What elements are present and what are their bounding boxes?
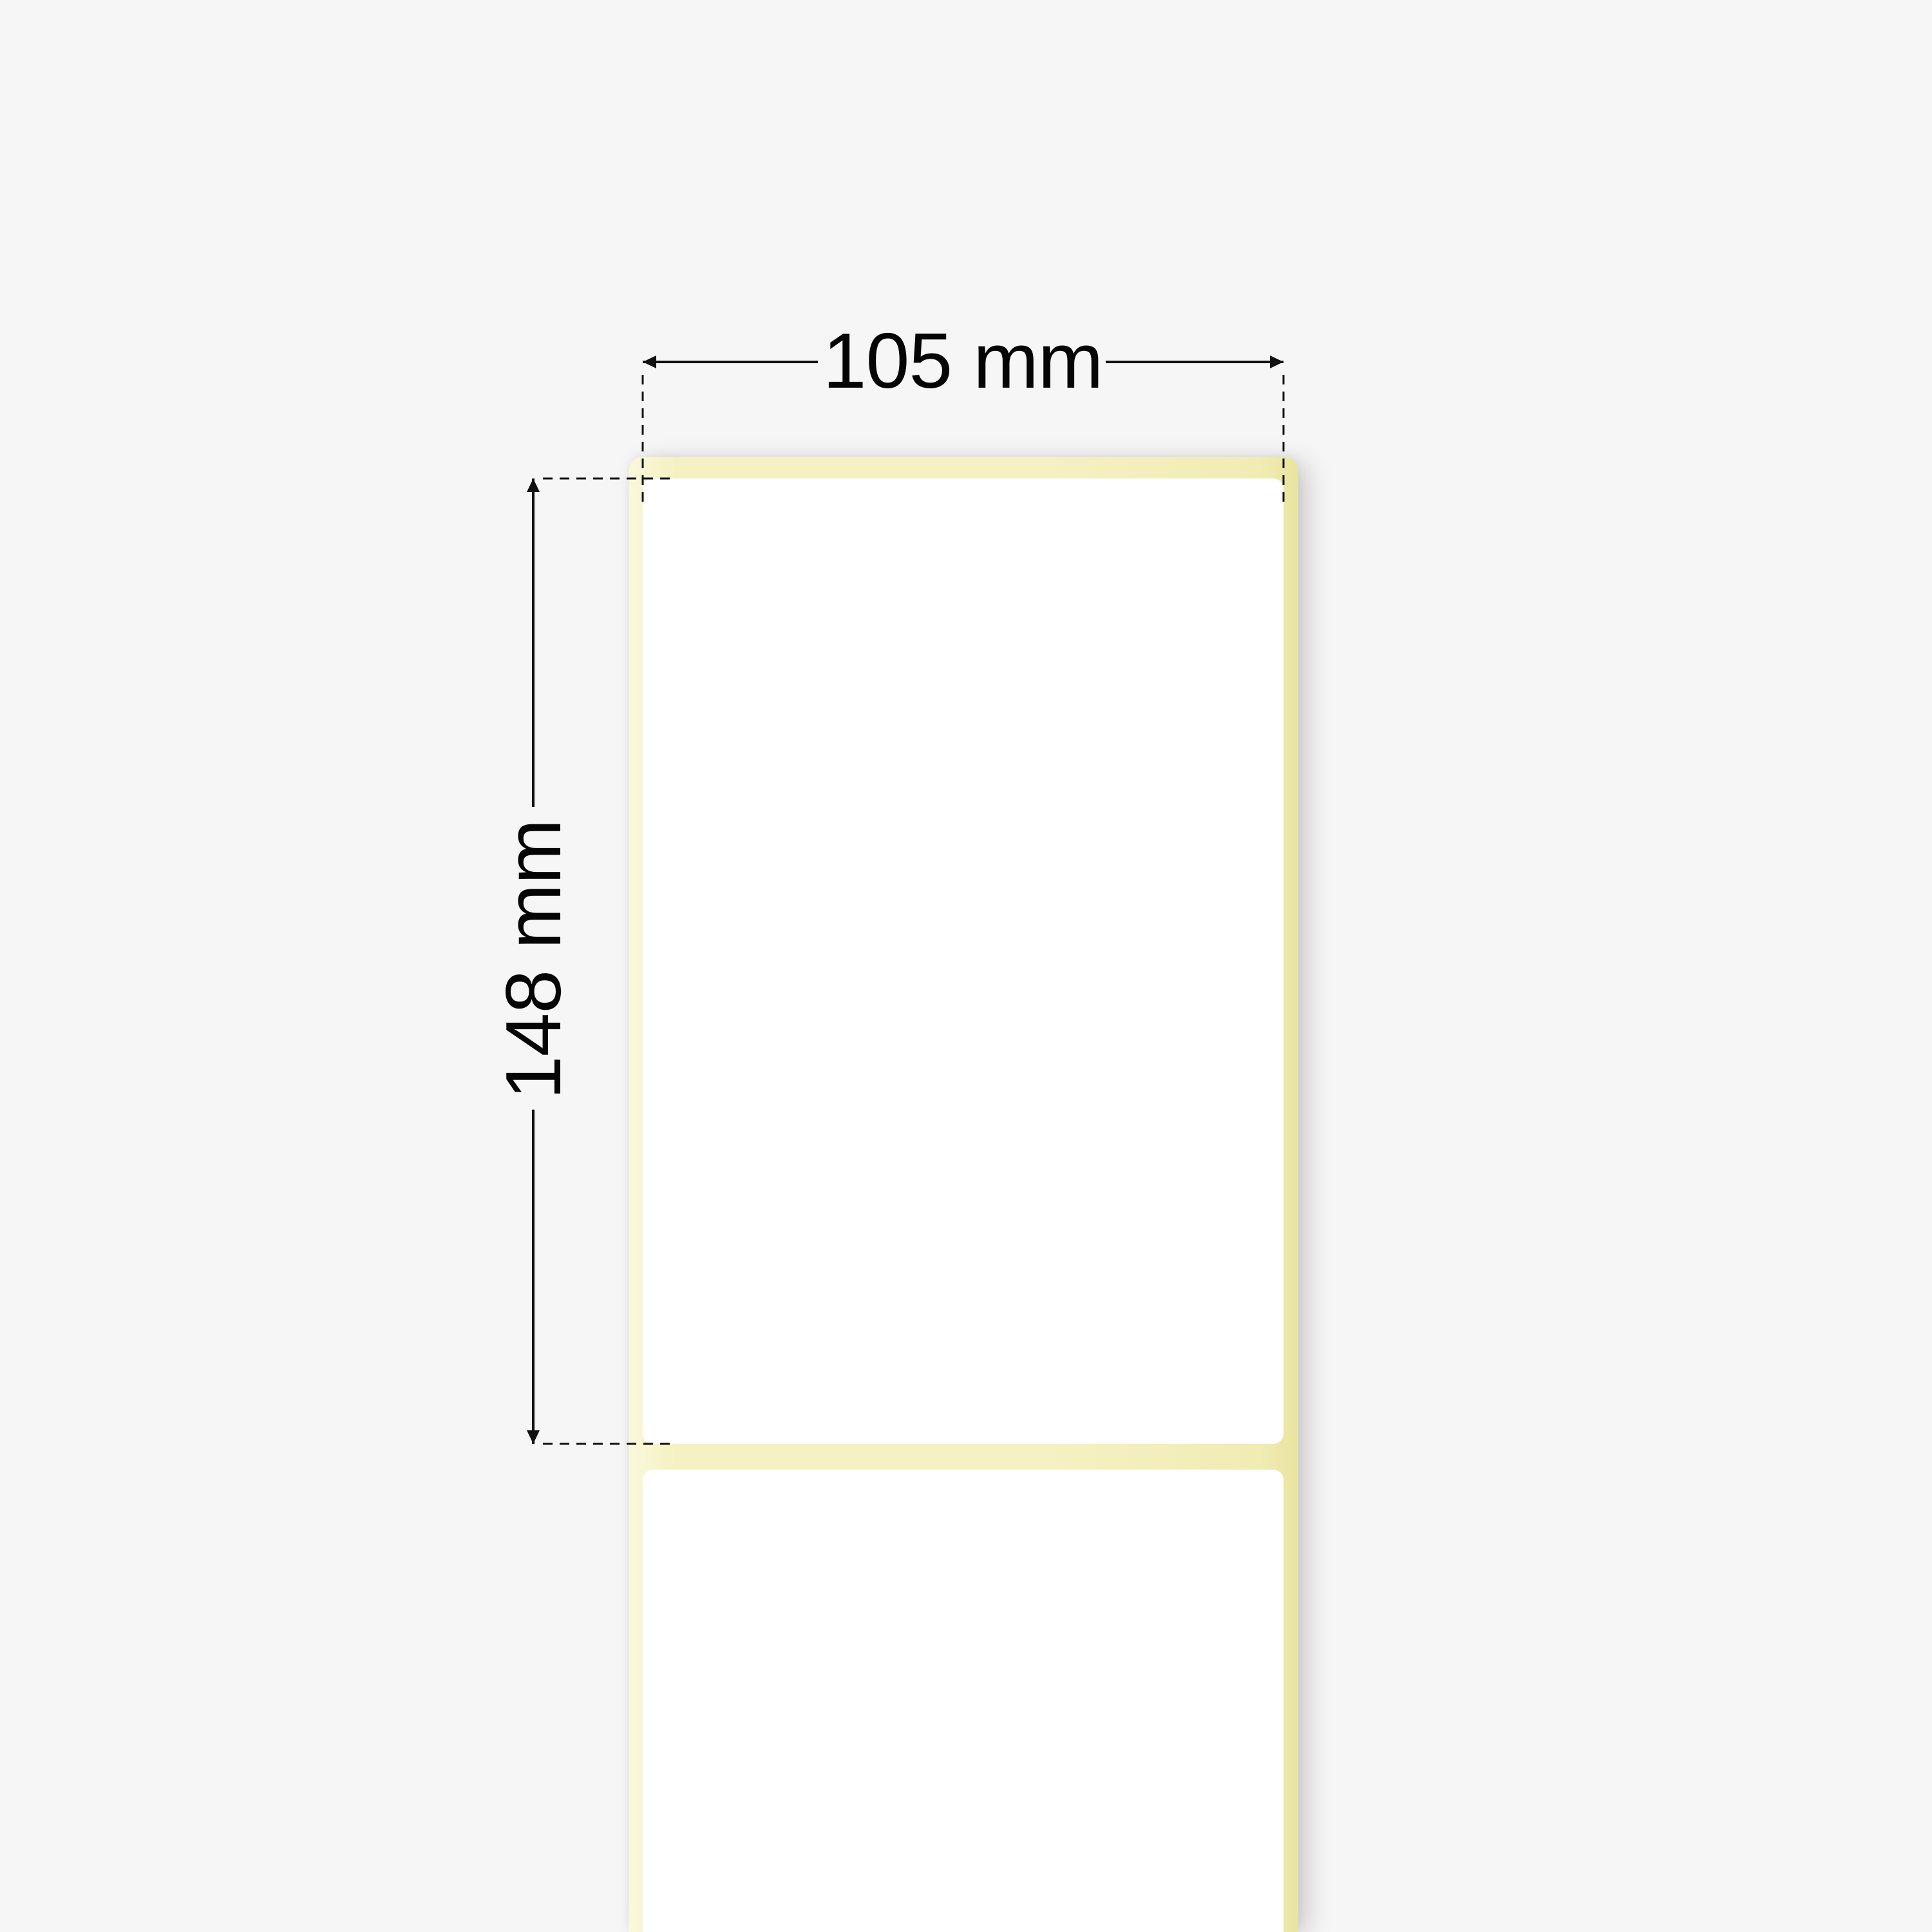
width-dimension-label: 105 mm bbox=[823, 321, 1103, 400]
arrow-right-icon bbox=[1270, 355, 1283, 368]
arrow-down-icon bbox=[527, 1430, 540, 1444]
height-dimension-label: 148 mm bbox=[494, 820, 573, 1100]
label-dimension-diagram: 105 mm 148 mm bbox=[0, 0, 1932, 1932]
arrow-left-icon bbox=[643, 355, 656, 368]
blank-label-top bbox=[643, 478, 1283, 1444]
arrow-up-icon bbox=[527, 478, 540, 492]
blank-label-bottom bbox=[643, 1470, 1283, 1932]
